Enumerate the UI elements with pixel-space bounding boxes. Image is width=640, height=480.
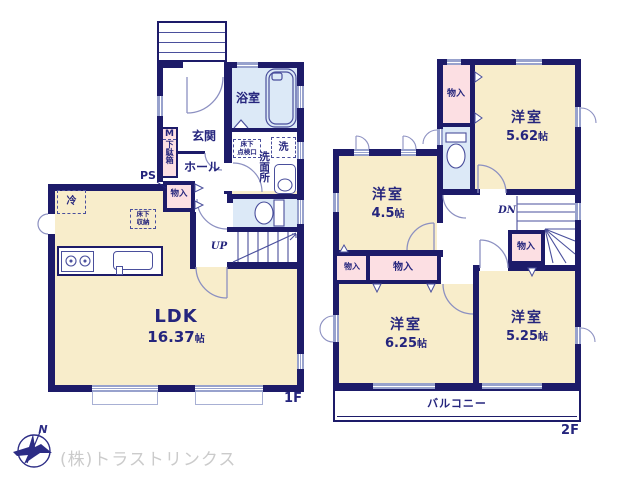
plan-element: 5.25 [506, 329, 538, 344]
hallway-2f-lower [443, 268, 473, 284]
compass-north-label: N [36, 424, 50, 437]
sink-faucet [116, 266, 123, 275]
plan-element: 床下点検口 [237, 141, 257, 157]
label-closet-1f: 物入 [164, 190, 194, 200]
washroom-window [297, 142, 304, 159]
door-opening [437, 223, 443, 250]
underfloor-hatch: 床下点検口 [233, 139, 261, 158]
wall [508, 265, 581, 271]
wall [506, 189, 575, 195]
plan-element: 4.5 [371, 206, 394, 221]
hallway-1f [195, 182, 227, 267]
plan-element: 洋室 [511, 110, 543, 126]
window-625-left [333, 315, 339, 342]
plan-element [159, 32, 225, 33]
compass-icon [13, 432, 52, 467]
plan-element: 床下収納 [137, 211, 150, 227]
washbasin [274, 164, 296, 194]
wall [333, 383, 581, 389]
wall [48, 385, 304, 392]
plan-element [356, 136, 369, 149]
shutter-box-left [92, 392, 158, 405]
label-up: UP [208, 241, 230, 253]
door-opening [227, 203, 233, 227]
window-2f-top [516, 59, 542, 65]
shoe-cabinet-label: 下駄箱 [165, 140, 174, 164]
stove [61, 251, 94, 272]
wall [190, 212, 196, 269]
label-hall: ホール [180, 161, 224, 175]
plan-element: 5.62 [506, 129, 538, 144]
plan-element: 帖 [538, 332, 548, 343]
door-opening [48, 214, 55, 234]
company-watermark: (株)トラストリンクス [60, 445, 236, 470]
plan-element [38, 224, 48, 234]
label-entrance: 玄関 [185, 130, 223, 144]
casement-windows-45 [356, 136, 416, 149]
label-closet-2f-small: 物入 [337, 262, 367, 271]
plan-element: 床下 [241, 140, 254, 148]
toilet-window-1f [297, 200, 304, 224]
entrance-window [157, 96, 163, 116]
label-floor-1f: 1F [281, 392, 305, 407]
plan-element [423, 130, 437, 144]
plan-element: 冷 [67, 196, 77, 208]
window-stairs-2f [575, 203, 581, 220]
window-625-balcony [373, 383, 435, 389]
label-room-525: 洋室 5.25帖 [467, 308, 587, 345]
laundry-space: 洗 [271, 137, 296, 158]
label-room-562: 洋室 5.62帖 [467, 108, 587, 145]
stairwell-1f [227, 232, 297, 262]
plan-element: 洋室 [372, 187, 404, 203]
plan-element: 床下 [137, 210, 150, 218]
plan-element: 洋室 [511, 310, 543, 326]
wall [443, 123, 470, 127]
plan-element: 点検口 [237, 148, 257, 156]
bathroom-window [237, 62, 258, 68]
plan-element: 6.25 [385, 336, 417, 351]
plan-element: 16.37 [147, 328, 194, 346]
wall [475, 189, 480, 195]
door-opening [224, 163, 232, 191]
wall [473, 265, 480, 271]
ldk-window-right [195, 385, 263, 392]
label-ps: PS [136, 170, 160, 183]
plan-element [27, 432, 40, 463]
plan-element [13, 434, 52, 464]
plan-element [159, 52, 225, 53]
window-45-top-a [354, 149, 369, 156]
plan-element [320, 316, 333, 329]
porch-steps [157, 21, 227, 62]
wall [157, 62, 183, 68]
label-room-45: 洋室 4.5帖 [328, 185, 448, 222]
plan-element: 収納 [137, 218, 150, 226]
plan-element [320, 329, 333, 342]
plan-element: 洋室 [390, 317, 422, 333]
room-toilet-1f [227, 194, 297, 232]
underfloor-storage: 床下収納 [130, 209, 156, 229]
label-washroom: 洗面所 [258, 145, 270, 189]
plan-element: 洗 [279, 142, 289, 154]
label-closet-2f-top: 物入 [441, 89, 471, 99]
plan-element [403, 136, 416, 149]
plan-element: LDK [154, 306, 197, 327]
label-room-625: 洋室 6.25帖 [346, 315, 466, 352]
window-toilet-2f [437, 129, 443, 145]
label-closet-2f-wide: 物入 [388, 262, 418, 274]
plan-element [18, 435, 50, 467]
plan-element: 帖 [195, 334, 205, 345]
window-2f-top-small [447, 59, 461, 65]
window-525-balcony [482, 383, 542, 389]
label-balcony: バルコニー [407, 398, 507, 411]
plan-element: 帖 [417, 339, 427, 350]
wall [227, 128, 297, 132]
plan-element: 帖 [538, 132, 548, 143]
floorplan-canvas: M 下駄箱 冷 床下収納 床下点検口 洗 玄関 ホール 浴室 洗面所 PS 物入… [0, 0, 640, 480]
ldk-back-door [38, 214, 48, 234]
wall [333, 149, 443, 156]
wall [224, 62, 304, 68]
label-ldk: LDK 16.37帖 [116, 307, 236, 346]
label-bathroom: 浴室 [234, 92, 262, 106]
plan-element: 帖 [395, 209, 405, 220]
label-floor-2f: 2F [558, 424, 582, 439]
room-toilet-2f [443, 127, 470, 189]
window-45-top-b [401, 149, 416, 156]
label-dn: DN [496, 205, 518, 217]
plan-element [38, 214, 48, 224]
shutter-box-right [195, 392, 263, 405]
ldk-side-window [297, 354, 304, 369]
ldk-window-left [92, 385, 158, 392]
wall [227, 262, 304, 269]
shoe-cabinet-m-label: M [165, 129, 174, 139]
fridge-space: 冷 [57, 190, 86, 214]
plan-element [159, 42, 225, 43]
bathroom-side-window [297, 86, 304, 108]
label-closet-2f-stairs: 物入 [511, 242, 541, 252]
wall [297, 62, 304, 392]
shoe-cabinet: M 下駄箱 [161, 127, 178, 178]
